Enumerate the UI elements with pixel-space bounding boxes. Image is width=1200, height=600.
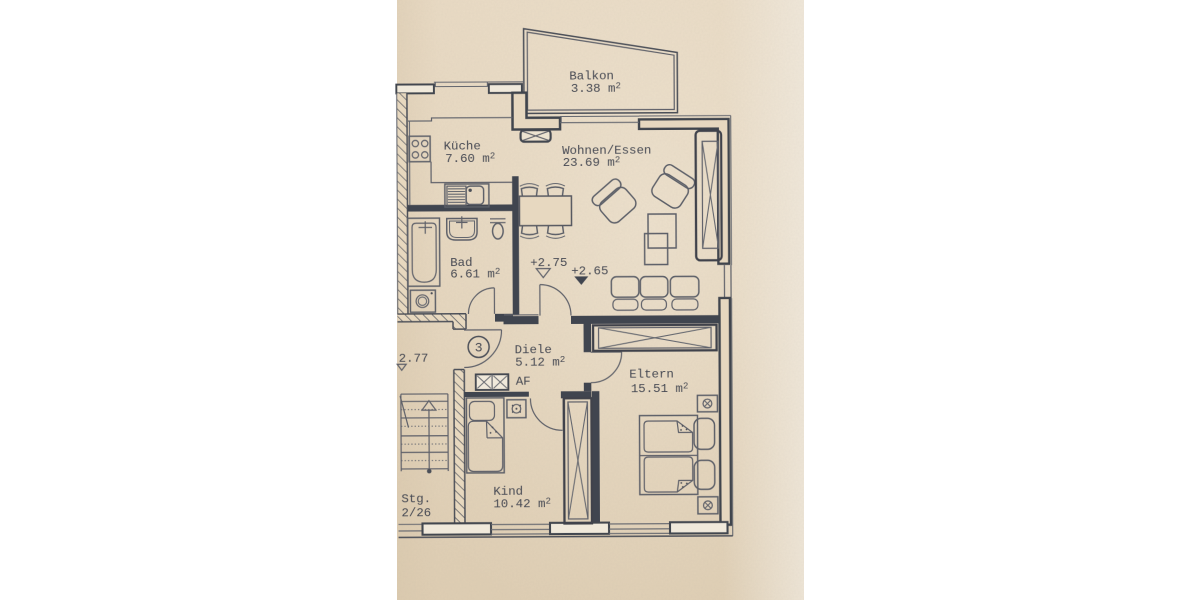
svg-text:Eltern: Eltern (629, 367, 674, 381)
svg-text:5.12 m2: 5.12 m2 (515, 355, 565, 370)
svg-text:3.38 m2: 3.38 m2 (571, 81, 621, 96)
svg-text:10.42 m2: 10.42 m2 (493, 497, 551, 512)
svg-text:3: 3 (475, 340, 483, 355)
svg-text:23.69 m2: 23.69 m2 (563, 155, 621, 170)
svg-text:+2.65: +2.65 (571, 264, 608, 278)
svg-text:2.77: 2.77 (399, 352, 429, 366)
svg-text:AF: AF (516, 375, 531, 389)
svg-text:Stg.: Stg. (401, 492, 431, 506)
svg-text:6.61 m2: 6.61 m2 (450, 267, 500, 282)
svg-text:15.51 m2: 15.51 m2 (631, 381, 689, 396)
svg-text:7.60 m2: 7.60 m2 (445, 151, 495, 166)
svg-text:2/26: 2/26 (401, 506, 431, 520)
